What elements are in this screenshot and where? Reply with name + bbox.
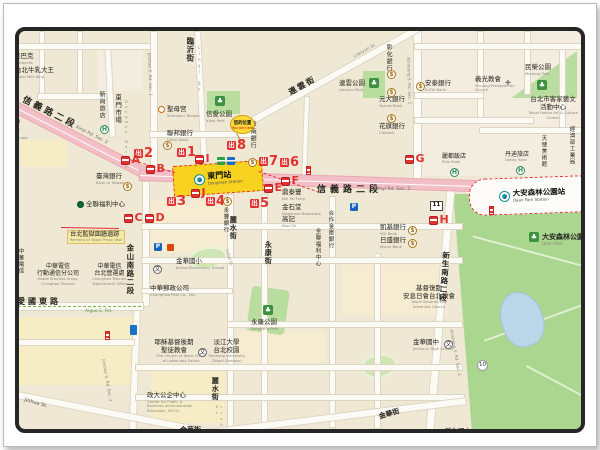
map-label: (大) xyxy=(15,127,20,134)
map-label: 政大公企中心Center for Public & Business Admin… xyxy=(147,392,192,414)
map-label: Jinshan S. Rd. Sec. 1 xyxy=(146,53,152,96)
road xyxy=(15,339,135,346)
map-label: 安泰銀行EnTie Bank xyxy=(425,80,451,92)
map-label: 基督復臨 安息日會台北教會Taipei Seventh-day Adventis… xyxy=(397,285,461,310)
map-label: Linyi St. xyxy=(196,45,201,99)
map-label: 聯邦銀行Union Bank xyxy=(167,130,193,142)
exit-icon: 出 xyxy=(167,197,176,206)
bus-stop-B: B xyxy=(146,164,165,174)
map-label: 星巴克Starbucks xyxy=(15,53,34,65)
road xyxy=(39,31,45,97)
bluebox-icon xyxy=(130,325,137,335)
map-label: 永康街 xyxy=(264,241,272,265)
bus-stop-G: G xyxy=(405,154,425,164)
map-label: 臨沂街 xyxy=(185,37,194,63)
map-label: 丹迪旅店Dandy Hotel xyxy=(505,151,529,162)
plate-icon: 11 xyxy=(430,201,443,211)
map-origin: 東門站 Dongmen Station 大安森林公園站 Daan Park St… xyxy=(15,27,585,433)
bus-stop-J: J xyxy=(191,188,206,198)
map-label: 中華電信 xyxy=(17,248,23,274)
map-label: 耶穌基督後期 聖徒教會The Church of Jesus Christ of… xyxy=(151,339,197,364)
hotel-icon: H xyxy=(100,125,109,134)
map-label: 永康公園Yongkang Park xyxy=(251,319,278,331)
school-icon: 文 xyxy=(153,265,162,274)
bus-stop-E: E xyxy=(264,183,282,193)
map-label: Xinyi Rd. Sec. 2 xyxy=(375,187,410,192)
school-icon: 文 xyxy=(444,340,453,349)
bank-icon: $ xyxy=(223,197,232,206)
bank-icon: $ xyxy=(123,182,132,191)
road xyxy=(15,43,151,50)
exit-icon: 出 xyxy=(206,197,215,206)
map-label: 新尚旅店 xyxy=(98,91,105,119)
city-block xyxy=(21,140,67,167)
bus-stop-A: A xyxy=(121,155,140,165)
metro-exit-5: 出5 xyxy=(250,198,269,209)
map-label: 新生國小 xyxy=(445,428,471,433)
map-label: 金華街 xyxy=(180,426,201,433)
park-icon: ♣ xyxy=(263,305,273,315)
city-block xyxy=(15,317,133,385)
map-label: 合作金庫銀行 xyxy=(327,210,333,249)
stripe-icon xyxy=(489,206,494,215)
bus-icon xyxy=(264,184,273,193)
bus-icon xyxy=(121,156,130,165)
map-label: 愛國東路 xyxy=(17,297,61,306)
exit-icon: 出 xyxy=(227,141,236,150)
map-label: 信愛公園Xinai Park xyxy=(206,111,232,123)
map-label: 大安森林公園Daan Park xyxy=(542,233,584,246)
parking-icon: P xyxy=(350,203,358,211)
map-label: 麗都飯店Rido Hotel xyxy=(442,153,466,164)
bus-icon xyxy=(281,177,290,186)
map-label: 日盛銀行Jihsun Bank xyxy=(380,237,406,249)
map-frame: 東門站 Dongmen Station 大安森林公園站 Daan Park St… xyxy=(15,27,585,433)
map-label: 金山南路二段 xyxy=(125,244,134,295)
road xyxy=(77,31,83,97)
map-label: 全聯福利中心 xyxy=(314,228,320,267)
park-icon: ♣ xyxy=(369,78,379,88)
map-label: 經濟部工業局 xyxy=(568,126,574,165)
map-label: 金華國小Jinhua Elementary School xyxy=(176,258,224,270)
stripe-icon xyxy=(105,331,110,340)
map-label: 凱基銀行KGI Bank xyxy=(380,224,406,236)
dongmen-station-name-en: Dongmen Station xyxy=(208,179,243,186)
map-label: 中 xyxy=(15,118,20,126)
road xyxy=(414,117,534,124)
road xyxy=(301,96,310,176)
metro-exit-6: 出6 xyxy=(280,157,299,168)
bus-stop-C: C xyxy=(124,213,143,223)
road xyxy=(414,92,484,99)
road xyxy=(37,93,107,100)
logo-g-icon xyxy=(77,201,84,208)
circle-icon: 10 xyxy=(477,360,488,371)
map-photo-screenshot: 東門站 Dongmen Station 大安森林公園站 Daan Park St… xyxy=(0,0,600,450)
bus-icon xyxy=(124,214,133,223)
metro-exit-8: 出8 xyxy=(227,140,246,151)
map-label: 台北牛乳大王Taipei Milk King xyxy=(15,67,54,79)
map-label: 連雲公園Lianyun Park xyxy=(339,80,365,92)
taipei-metro-logo-icon xyxy=(193,174,205,186)
prison-wall-remains xyxy=(61,227,119,229)
bus-icon xyxy=(405,155,414,164)
stripe-icon xyxy=(306,166,311,175)
map-label: 東門市場 xyxy=(113,94,121,124)
bank-icon: $ xyxy=(387,70,396,79)
bank-icon: $ xyxy=(408,239,417,248)
map-label: 永豐銀行 xyxy=(222,207,228,233)
metro-exit-7: 出7 xyxy=(259,156,278,167)
hotel-icon: H xyxy=(450,168,459,177)
hotel-icon: H xyxy=(516,166,525,175)
map-label: 淡江大學 台北校園Tamkang University (Taipei Camp… xyxy=(208,339,245,364)
police-icon xyxy=(227,157,235,165)
map-label: 鼎泰豐Din Tai Fung xyxy=(282,189,305,201)
bank-icon: $ xyxy=(408,226,417,235)
bank-icon: $ xyxy=(248,158,257,167)
school-icon: 文 xyxy=(198,348,207,357)
exit-icon: 出 xyxy=(177,148,186,157)
map-label: 彰化銀行 xyxy=(385,44,392,72)
exit-icon: 出 xyxy=(280,158,289,167)
map-label: 高記Kao Chi xyxy=(282,216,296,228)
bus-icon xyxy=(191,189,200,198)
map-label: 中華電信 行動通信分公司Mobile Business Group, Chung… xyxy=(37,263,79,286)
map-label: Aiguo E. Rd. xyxy=(85,309,112,314)
map-label: 全聯福利中心 xyxy=(86,201,125,209)
bank-icon: $ xyxy=(163,141,172,150)
map-label: 中華郵政公司Chunghwa Post Co., Ltd. xyxy=(150,285,196,297)
map-label: 花旗銀行Citibank xyxy=(379,123,405,135)
daan-station-name-en: Daan Park Station xyxy=(513,196,566,203)
map-label: 天使美術館 xyxy=(540,135,546,168)
map-label: 麗水街 xyxy=(229,216,237,240)
bank-icon: $ xyxy=(387,114,396,123)
taipei-metro-logo-icon xyxy=(499,191,510,202)
bus-icon xyxy=(146,165,155,174)
map-label: 民榮公園Minrong Park xyxy=(525,64,551,76)
map-label: Lishui St. xyxy=(214,404,223,433)
city-block xyxy=(237,331,325,363)
you-are-here-en: You are here xyxy=(232,126,253,130)
bus-icon xyxy=(195,155,204,164)
metro-exit-3: 出3 xyxy=(167,196,186,207)
bus-icon xyxy=(429,216,438,225)
exit-icon: 出 xyxy=(250,199,259,208)
map-label: 臺灣銀行Bank of Taiwan xyxy=(96,173,124,185)
road-lianyun xyxy=(247,27,422,126)
map-label: 台北市客家藝文 活動中心Taipei Hakka Art & Culture C… xyxy=(522,96,584,121)
park-icon: ♣ xyxy=(215,96,225,106)
bus-stop-H: H xyxy=(429,215,449,225)
exit-icon: 出 xyxy=(259,157,268,166)
map-label: Xinsheng S. Rd. Sec. 1 xyxy=(405,57,412,104)
map-label: 元大銀行Yuanta Bank xyxy=(379,96,405,108)
map-label: High School xyxy=(15,136,28,140)
bus-stop-I: I xyxy=(195,154,210,164)
shop-icon xyxy=(167,244,174,251)
postbox-icon xyxy=(217,157,225,165)
daan-park-station-block: 大安森林公園站 Daan Park Station xyxy=(468,175,585,216)
road xyxy=(414,43,585,50)
bus-stop-D: D xyxy=(145,213,165,223)
park-path xyxy=(582,193,585,261)
church-icon: ✚ xyxy=(505,80,511,87)
temple-icon xyxy=(158,106,165,113)
metro-exit-1: 出1 xyxy=(177,147,196,158)
road xyxy=(135,364,463,371)
map-label: 信義路二段 xyxy=(317,185,382,196)
map-label: 聖母宮Shengmu Temple xyxy=(167,106,200,118)
park-icon: ♣ xyxy=(537,80,547,90)
map-label: 麗水街 xyxy=(211,377,219,401)
bus-stop-F: F xyxy=(281,176,299,186)
parking-icon: P xyxy=(154,243,162,251)
map-label: 台北監獄圍牆遺跡Remains of Taipei Prison Wall xyxy=(67,230,125,244)
bus-icon xyxy=(145,214,154,223)
bank-icon: $ xyxy=(416,82,425,91)
photo-mat: 東門站 Dongmen Station 大安森林公園站 Daan Park St… xyxy=(3,3,597,447)
map-label: 中華電信 台北營運處Chunghwa Telecom Taipei Branch… xyxy=(92,263,127,286)
road xyxy=(374,253,381,429)
you-are-here-badge: 您的位置 You are here xyxy=(230,115,255,134)
park-icon: ♣ xyxy=(529,232,539,242)
bank-icon: $ xyxy=(387,88,396,97)
